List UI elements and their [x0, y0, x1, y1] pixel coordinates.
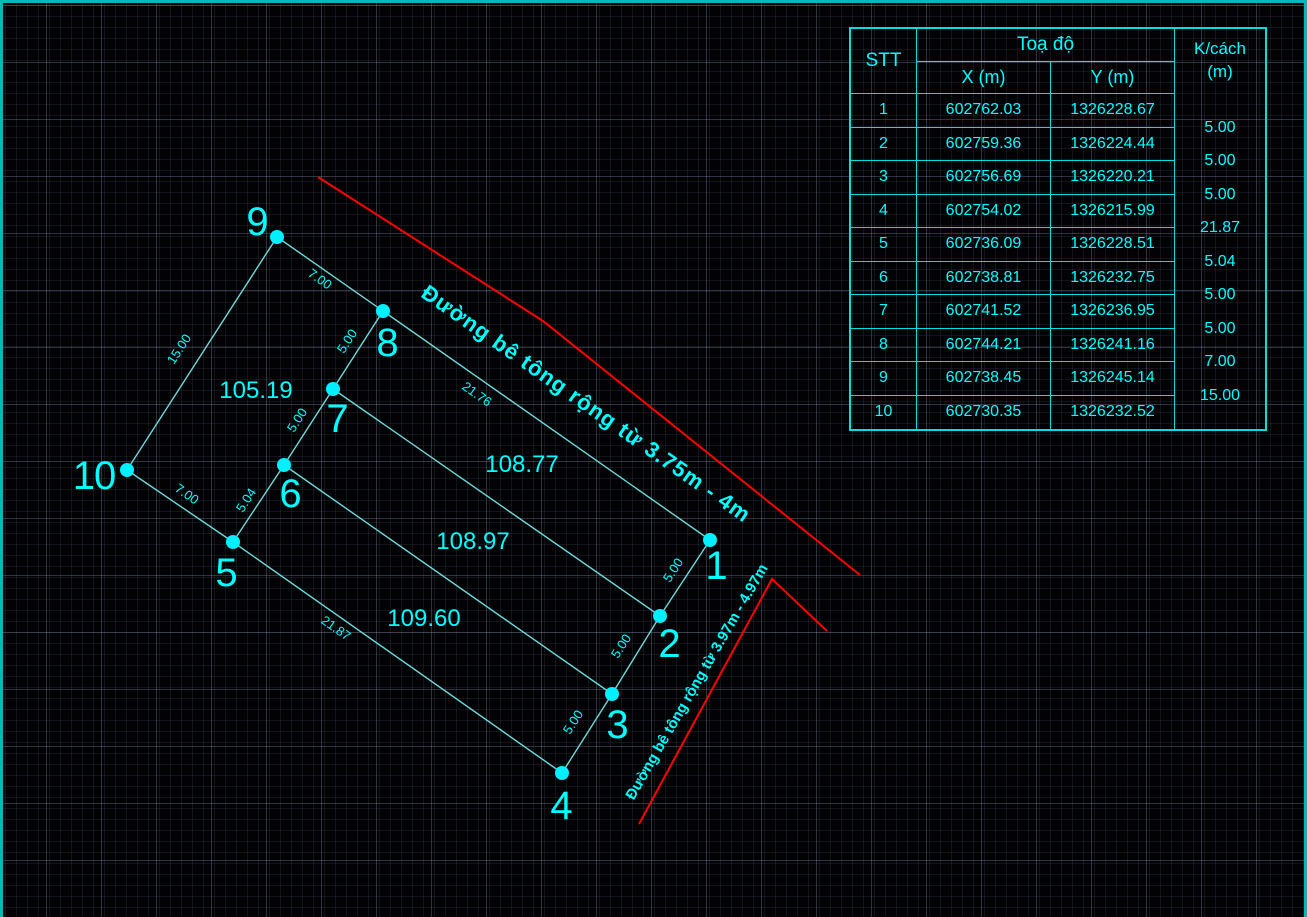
stt-cell: 6 — [851, 262, 917, 296]
stt-cell: 8 — [851, 329, 917, 363]
x-cell: 602741.52 — [917, 295, 1051, 329]
vertex-label-2[interactable]: 2 — [658, 624, 679, 664]
table-header-kcach: K/cách (m) — [1175, 38, 1265, 84]
x-cell: 602738.45 — [917, 362, 1051, 396]
table-header-x: X (m) — [917, 62, 1051, 94]
y-cell: 1326236.95 — [1051, 295, 1174, 329]
kcach-value: 7.00 — [1175, 352, 1265, 372]
vertex-label-7[interactable]: 7 — [326, 399, 347, 439]
y-cell: 1326228.51 — [1051, 228, 1174, 262]
table-header-y: Y (m) — [1051, 62, 1174, 94]
table-header-toado: Toạ độ — [917, 29, 1174, 62]
x-cell: 602754.02 — [917, 195, 1051, 229]
vertex-label-5[interactable]: 5 — [215, 553, 236, 593]
stt-cell: 3 — [851, 161, 917, 195]
vertex-dot-8[interactable] — [376, 304, 390, 318]
x-cell: 602738.81 — [917, 262, 1051, 296]
y-cell: 1326245.14 — [1051, 362, 1174, 396]
stt-cell: 5 — [851, 228, 917, 262]
vertex-label-6[interactable]: 6 — [279, 474, 300, 514]
x-cell: 602756.69 — [917, 161, 1051, 195]
y-cell: 1326215.99 — [1051, 195, 1174, 229]
vertex-dot-7[interactable] — [326, 382, 340, 396]
stt-cell: 2 — [851, 128, 917, 162]
y-cell: 1326241.16 — [1051, 329, 1174, 363]
stt-cell: 9 — [851, 362, 917, 396]
x-cell: 602762.03 — [917, 94, 1051, 128]
x-cell: 602736.09 — [917, 228, 1051, 262]
divider-6-3[interactable] — [284, 465, 612, 694]
parcel-boundary-lines — [127, 237, 710, 773]
vertex-dot-5[interactable] — [226, 535, 240, 549]
vertex-dot-3[interactable] — [605, 687, 619, 701]
vertex-label-8[interactable]: 8 — [376, 323, 397, 363]
stt-cell: 1 — [851, 94, 917, 128]
kcach-value: 5.04 — [1175, 252, 1265, 272]
area-label-lot-3[interactable]: 108.97 — [436, 530, 509, 554]
edge-4-5[interactable] — [233, 542, 562, 773]
edge-8-1[interactable] — [383, 311, 710, 540]
vertex-label-3[interactable]: 3 — [606, 705, 627, 745]
vertex-dot-6[interactable] — [277, 458, 291, 472]
road-line-upper[interactable] — [318, 177, 860, 575]
x-cell: 602730.35 — [917, 396, 1051, 430]
kcach-value: 15.00 — [1175, 386, 1265, 406]
y-cell: 1326224.44 — [1051, 128, 1174, 162]
cad-viewport[interactable]: 1 2 3 4 5 6 7 8 9 10 7.00 5.00 5.00 5.04… — [0, 0, 1307, 917]
y-cell: 1326232.52 — [1051, 396, 1174, 430]
vertex-label-1[interactable]: 1 — [705, 546, 726, 586]
stt-cell: 4 — [851, 195, 917, 229]
kcach-value: 21.87 — [1175, 218, 1265, 238]
stt-cell: 7 — [851, 295, 917, 329]
kcach-value: 5.00 — [1175, 319, 1265, 339]
stt-cell: 10 — [851, 396, 917, 430]
kcach-value: 5.00 — [1175, 285, 1265, 305]
coordinate-table[interactable]: STT Toạ độ X (m) Y (m) K/cách (m) 5.00 5… — [849, 27, 1267, 431]
vertex-dot-2[interactable] — [653, 609, 667, 623]
kcach-value: 5.00 — [1175, 118, 1265, 138]
area-label-lot-2[interactable]: 108.77 — [485, 453, 558, 477]
x-cell: 602759.36 — [917, 128, 1051, 162]
vertex-label-4[interactable]: 4 — [550, 786, 571, 826]
vertex-dot-9[interactable] — [270, 230, 284, 244]
vertex-label-9[interactable]: 9 — [246, 202, 267, 242]
vertex-dots — [120, 230, 717, 780]
x-cell: 602744.21 — [917, 329, 1051, 363]
table-kcach-column: K/cách (m) 5.00 5.00 5.00 21.87 5.04 5.0… — [1174, 29, 1265, 429]
y-cell: 1326232.75 — [1051, 262, 1174, 296]
y-cell: 1326220.21 — [1051, 161, 1174, 195]
kcach-value: 5.00 — [1175, 185, 1265, 205]
area-label-lot-1[interactable]: 105.19 — [219, 379, 292, 403]
y-cell: 1326228.67 — [1051, 94, 1174, 128]
kcach-value: 5.00 — [1175, 151, 1265, 171]
area-label-lot-4[interactable]: 109.60 — [387, 607, 460, 631]
vertex-label-10[interactable]: 10 — [73, 456, 116, 496]
vertex-dot-10[interactable] — [120, 463, 134, 477]
road-lines — [318, 177, 860, 824]
table-header-stt: STT — [851, 29, 917, 94]
edge-9-8[interactable] — [277, 237, 383, 311]
vertex-dot-4[interactable] — [555, 766, 569, 780]
edge-10-9[interactable] — [127, 237, 277, 470]
